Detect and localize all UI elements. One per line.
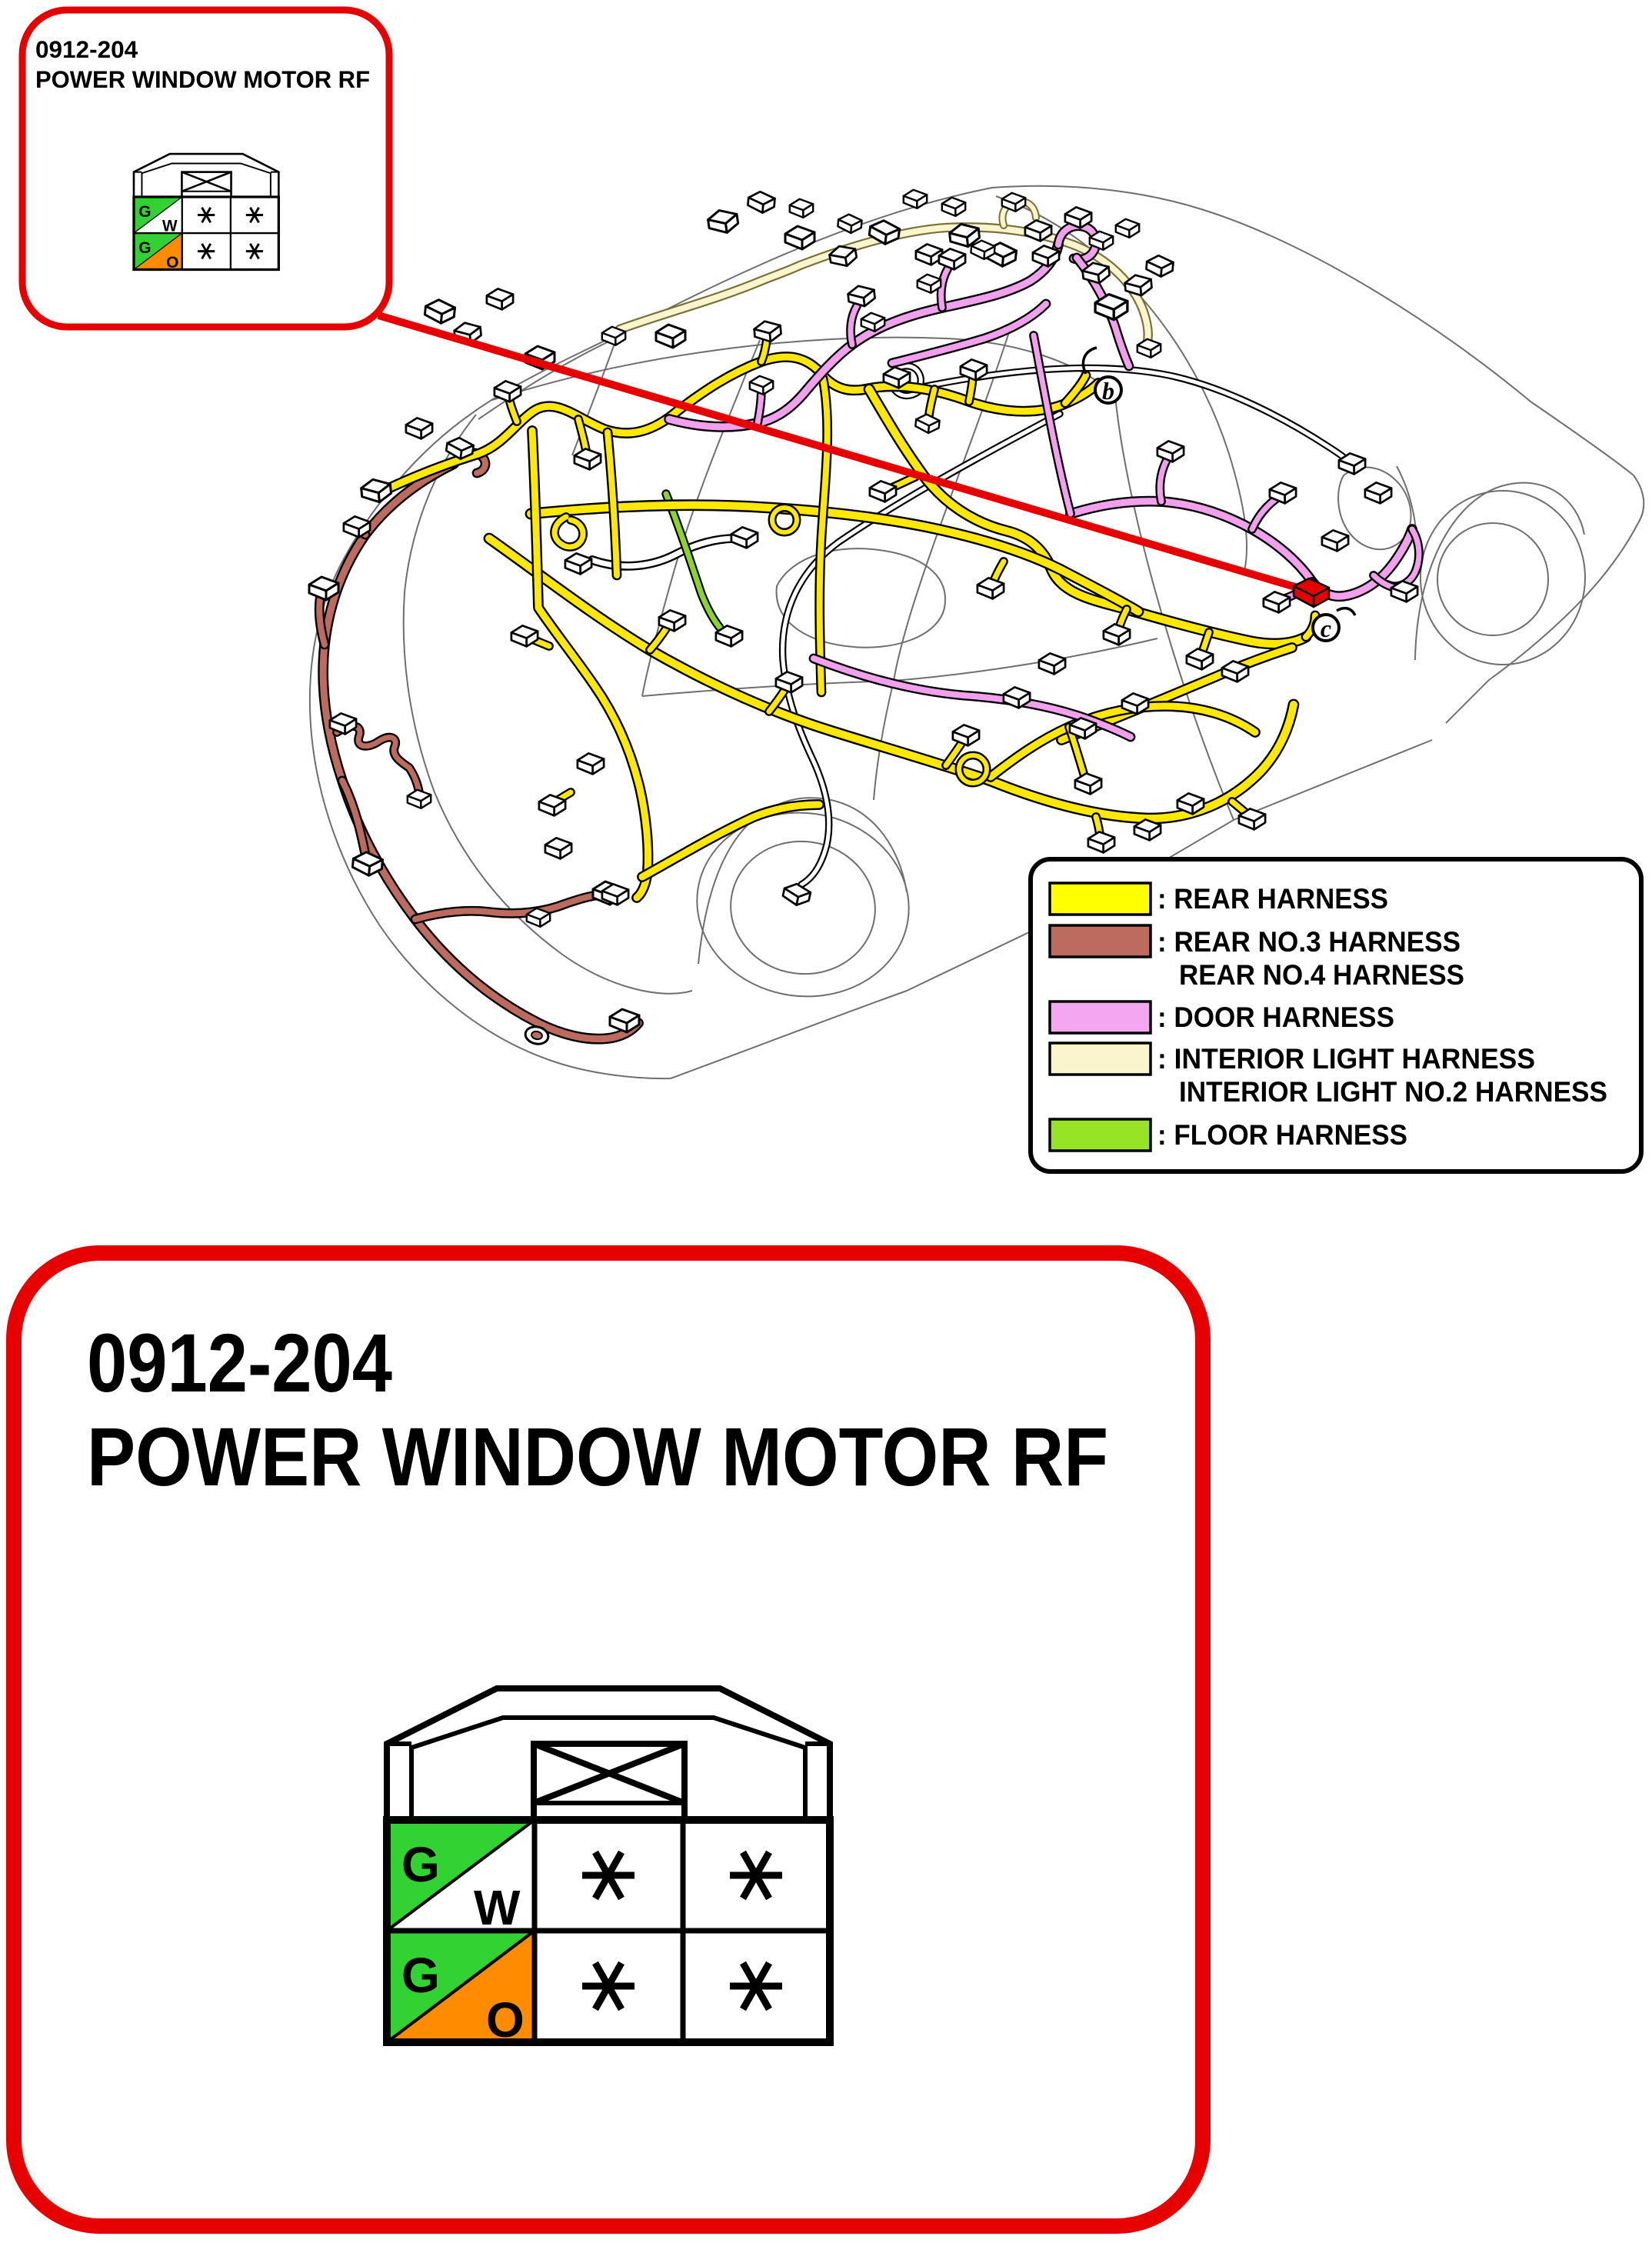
svg-text:: REAR NO.3 HARNESS: : REAR NO.3 HARNESS	[1157, 926, 1460, 958]
svg-text:0912-204: 0912-204	[87, 1316, 392, 1409]
svg-text:: INTERIOR LIGHT HARNESS: : INTERIOR LIGHT HARNESS	[1157, 1043, 1535, 1075]
svg-text:c: c	[1321, 615, 1331, 642]
svg-text:REAR NO.4 HARNESS: REAR NO.4 HARNESS	[1179, 959, 1464, 991]
svg-text:: FLOOR HARNESS: : FLOOR HARNESS	[1157, 1119, 1407, 1151]
svg-text:: REAR HARNESS: : REAR HARNESS	[1157, 883, 1388, 915]
svg-text:POWER WINDOW MOTOR RF: POWER WINDOW MOTOR RF	[35, 65, 370, 93]
svg-text:: DOOR HARNESS: : DOOR HARNESS	[1157, 1002, 1394, 1033]
svg-text:0912-204: 0912-204	[35, 35, 138, 63]
svg-text:b: b	[1102, 377, 1114, 405]
svg-text:POWER WINDOW MOTOR RF: POWER WINDOW MOTOR RF	[87, 1410, 1108, 1503]
svg-text:INTERIOR LIGHT NO.2 HARNESS: INTERIOR LIGHT NO.2 HARNESS	[1179, 1076, 1607, 1108]
